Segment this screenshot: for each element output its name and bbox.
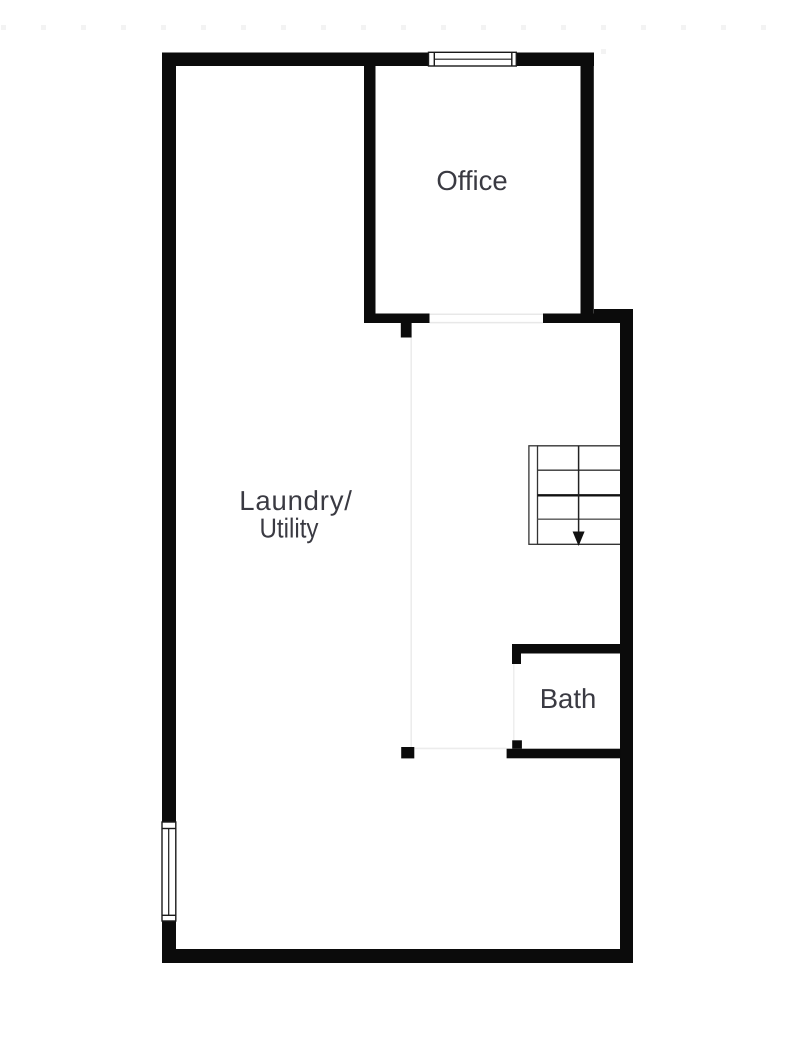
- svg-text:Laundry/: Laundry/: [239, 485, 352, 516]
- svg-text:Utility: Utility: [260, 513, 319, 544]
- svg-text:Bath: Bath: [540, 683, 597, 714]
- svg-text:Office: Office: [436, 165, 507, 196]
